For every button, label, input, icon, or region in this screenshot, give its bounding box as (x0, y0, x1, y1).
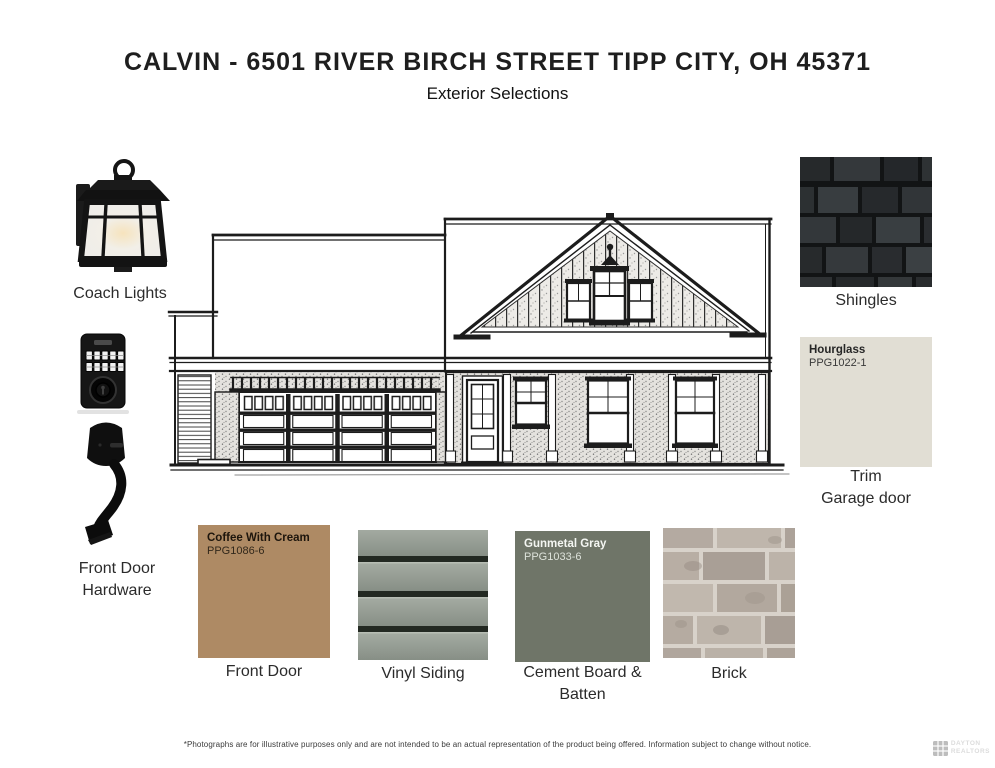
trim-paint-swatch: Hourglass PPG1022-1 (800, 337, 932, 467)
vinyl-siding-label: Vinyl Siding (348, 663, 498, 685)
front-door-paint-swatch: Coffee With Cream PPG1086-6 (198, 525, 330, 658)
shingles-texture (800, 157, 932, 287)
vinyl-siding-swatch (358, 530, 488, 660)
trim-label-line1: Trim (790, 466, 942, 488)
brick-swatch (663, 528, 795, 658)
mls-watermark-text: DAYTON REALTORS (951, 740, 990, 756)
front-door-hardware-label-line2: Hardware (27, 580, 207, 602)
mls-grid-icon (933, 741, 948, 756)
front-door-paint-code: PPG1086-6 (207, 545, 330, 558)
cement-board-label-line2: Batten (505, 684, 660, 706)
brick-texture (663, 528, 795, 658)
trim-label-line2: Garage door (790, 488, 942, 510)
cement-board-paint-name: Gunmetal Gray (524, 538, 650, 551)
vinyl-siding-texture (358, 530, 488, 660)
keypad-lock-image (74, 332, 132, 418)
front-door-hardware-label: Front Door Hardware (27, 558, 207, 602)
front-door-label: Front Door (198, 661, 330, 683)
front-door-hardware-label-line1: Front Door (27, 558, 207, 580)
shingles-swatch (800, 157, 932, 287)
page-subtitle: Exterior Selections (0, 84, 995, 104)
front-door-paint-name: Coffee With Cream (207, 532, 330, 545)
page-title: CALVIN - 6501 RIVER BIRCH STREET TIPP CI… (0, 48, 995, 77)
cement-board-label-line1: Cement Board & (505, 662, 660, 684)
mls-watermark: DAYTON REALTORS (933, 740, 990, 756)
cement-board-paint-swatch: Gunmetal Gray PPG1033-6 (515, 531, 650, 662)
brick-label: Brick (663, 663, 795, 685)
shingles-label: Shingles (800, 290, 932, 312)
mls-watermark-line1: DAYTON (951, 740, 990, 748)
handleset-image (74, 414, 138, 550)
selection-sheet: CALVIN - 6501 RIVER BIRCH STREET TIPP CI… (0, 0, 995, 768)
cement-board-batten-label: Cement Board & Batten (505, 662, 660, 706)
house-elevation-drawing (165, 208, 790, 478)
trim-garage-door-label: Trim Garage door (790, 466, 942, 510)
trim-paint-code: PPG1022-1 (809, 357, 932, 370)
disclaimer-text: *Photographs are for illustrative purpos… (0, 740, 995, 749)
trim-paint-name: Hourglass (809, 344, 932, 357)
cement-board-paint-code: PPG1033-6 (524, 551, 650, 564)
mls-watermark-line2: REALTORS (951, 748, 990, 756)
